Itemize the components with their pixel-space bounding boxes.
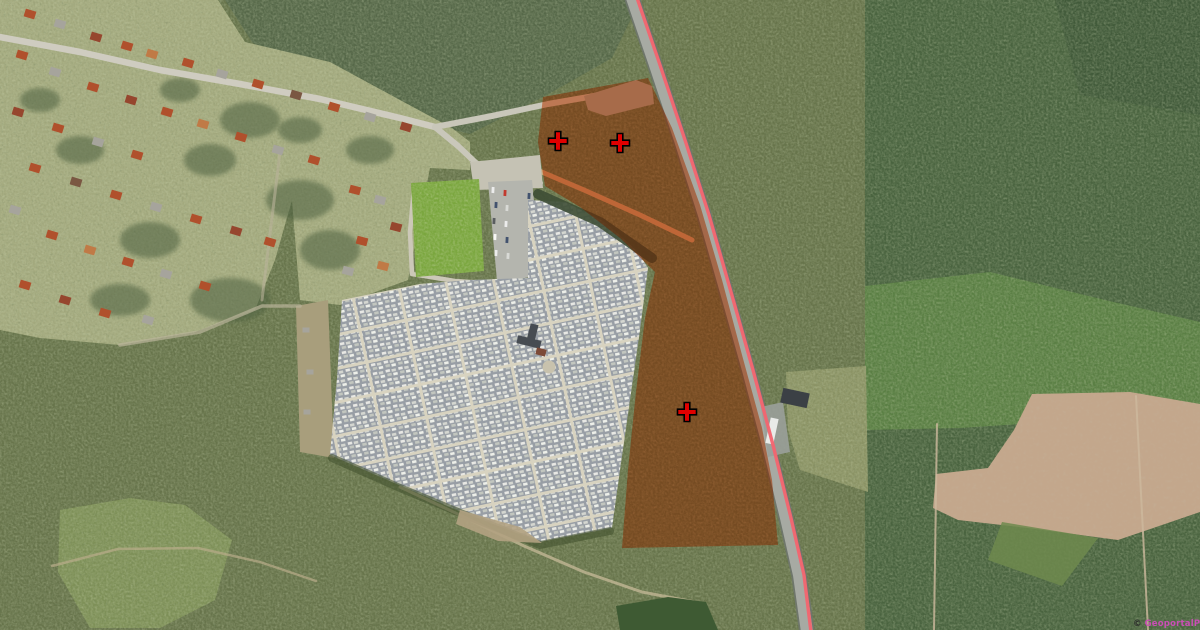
copyright-watermark: © GeoportalPl [1133, 620, 1200, 629]
map-canvas [0, 0, 1200, 630]
bare-strip-west-of-cemetery [296, 300, 334, 458]
copyright-symbol: © [1133, 619, 1142, 629]
sports-field-texture [411, 179, 484, 277]
watermark-text: GeoportalPl [1145, 619, 1200, 629]
chapel-plaza [543, 361, 556, 374]
aerial-map-image: © GeoportalPl [0, 0, 1200, 630]
